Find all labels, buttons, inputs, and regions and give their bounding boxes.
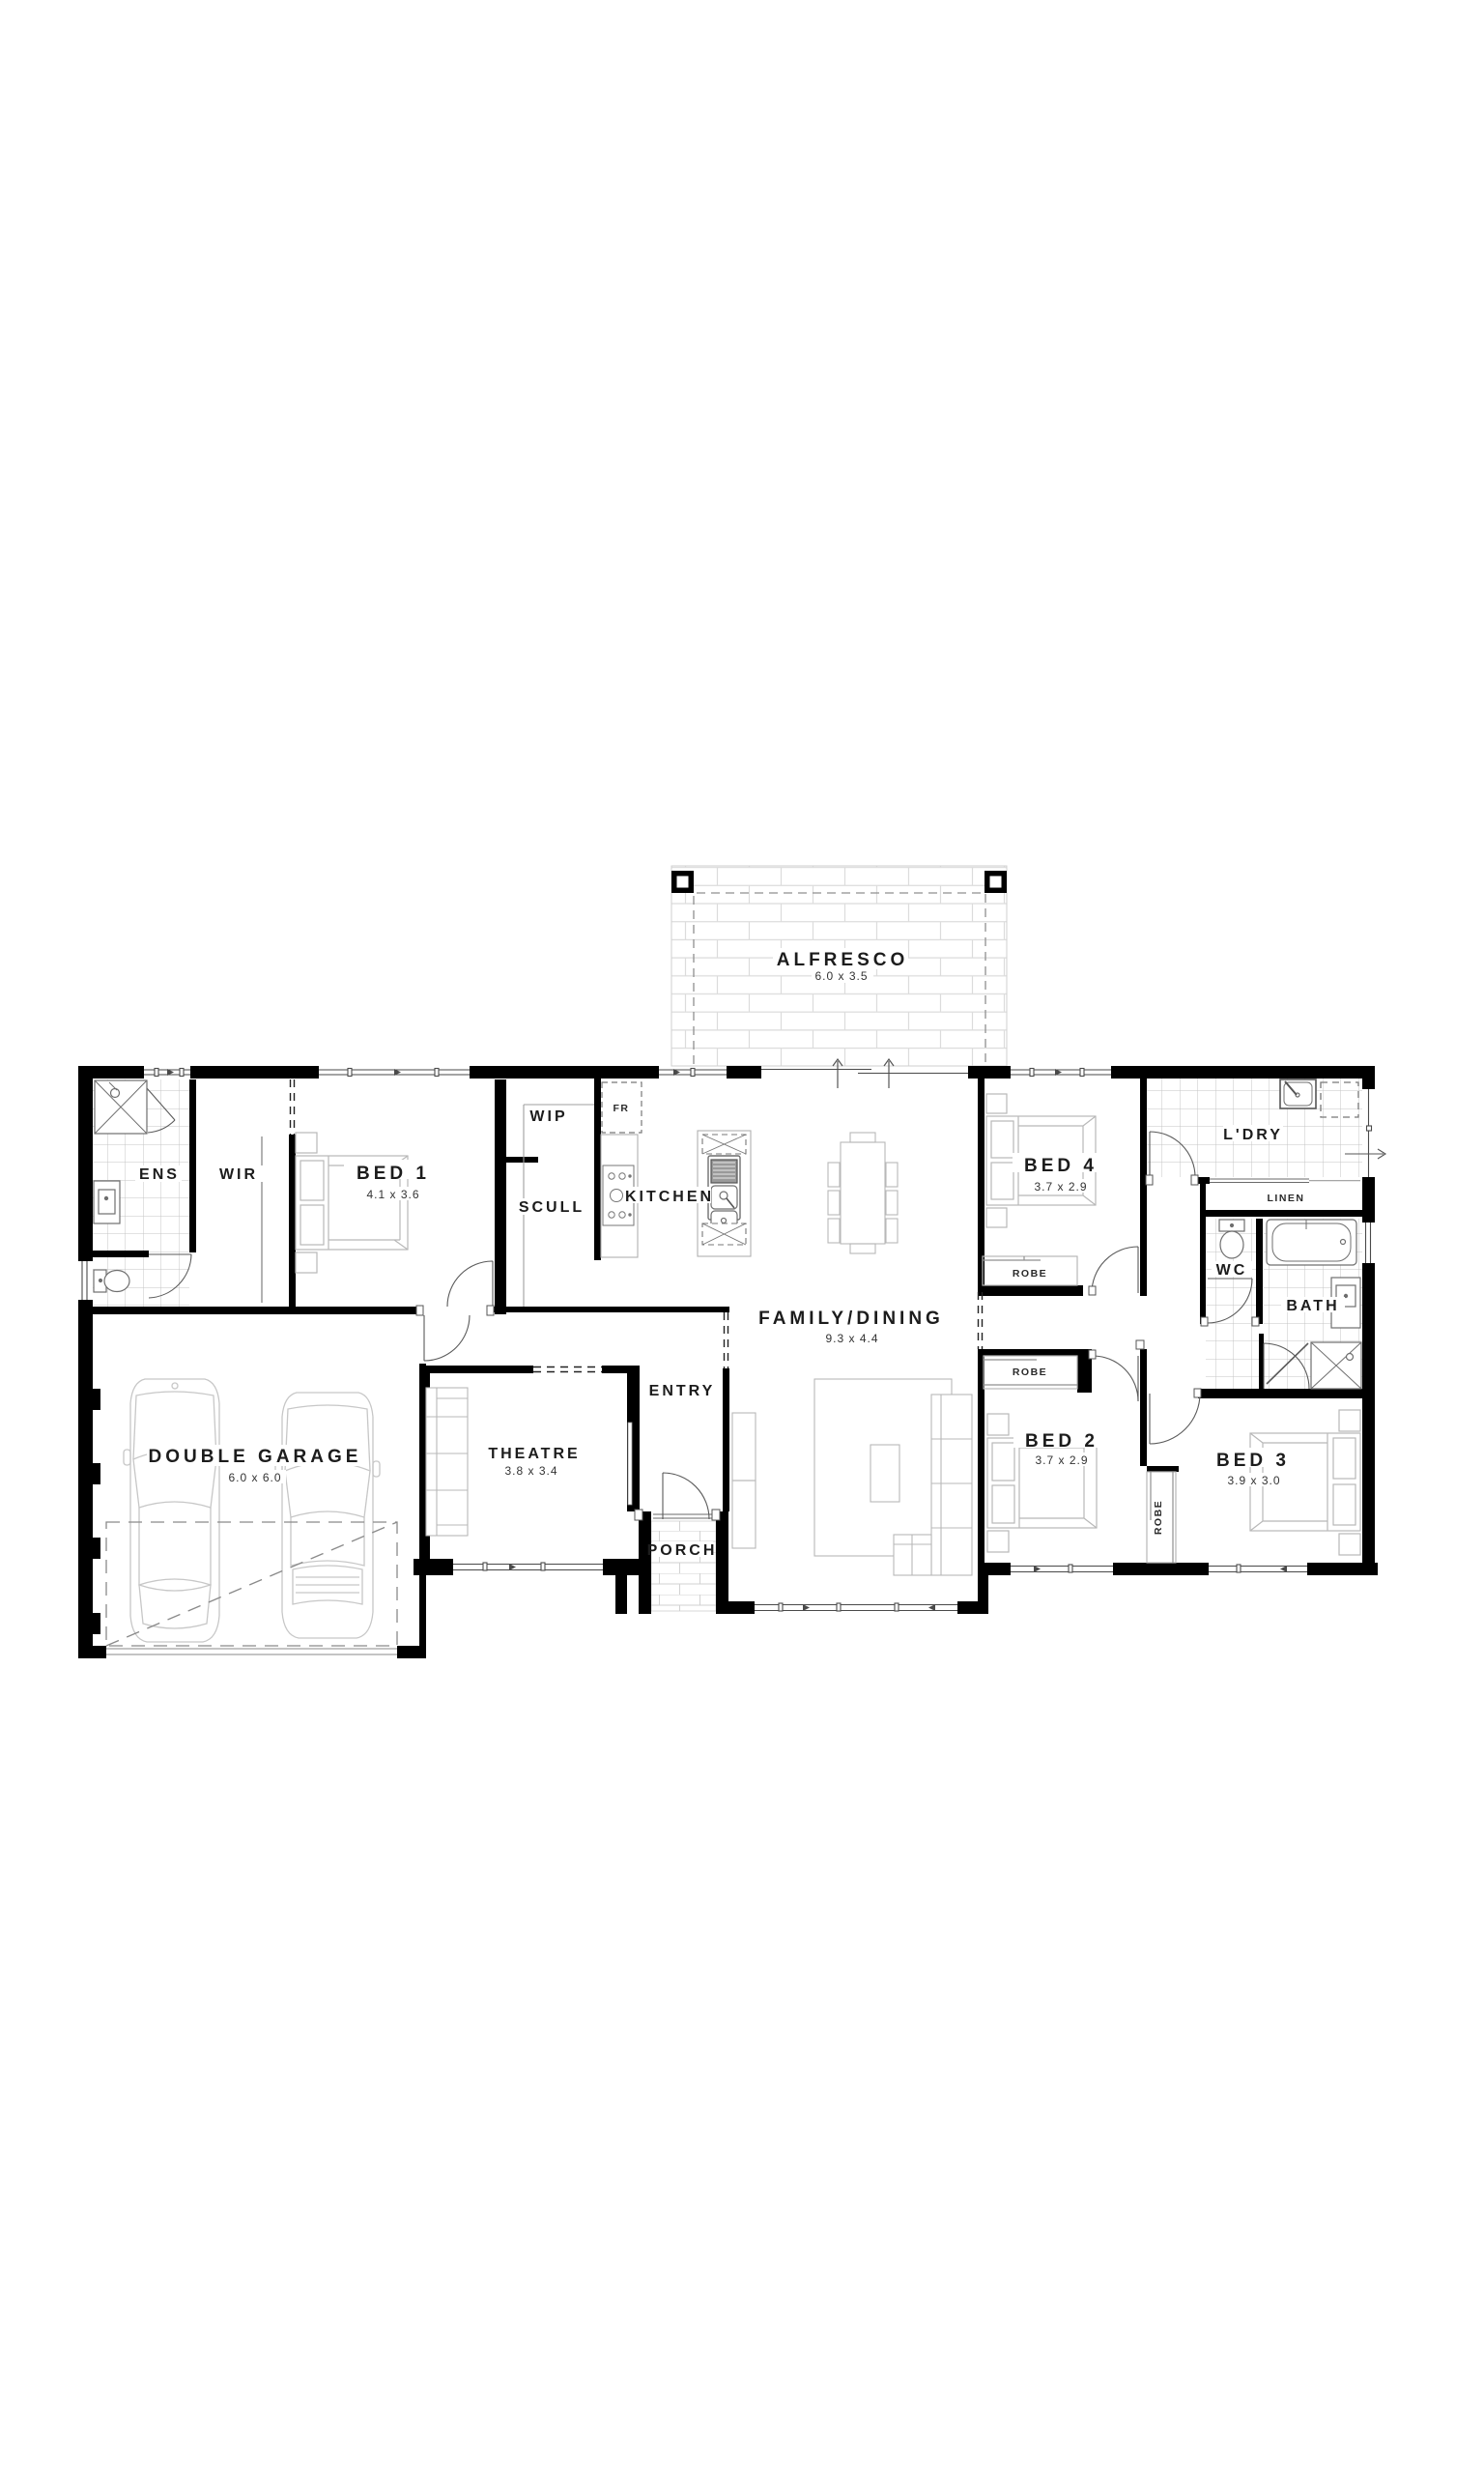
svg-text:3.9 x 3.0: 3.9 x 3.0 xyxy=(1227,1474,1280,1487)
svg-text:PORCH: PORCH xyxy=(647,1542,718,1559)
svg-text:3.7 x 2.9: 3.7 x 2.9 xyxy=(1034,1180,1087,1194)
svg-text:WC: WC xyxy=(1216,1262,1248,1279)
svg-text:ROBE: ROBE xyxy=(1013,1366,1047,1378)
svg-text:DOUBLE GARAGE: DOUBLE GARAGE xyxy=(149,1447,362,1467)
svg-text:9.3 x 4.4: 9.3 x 4.4 xyxy=(825,1332,878,1345)
svg-text:KITCHEN: KITCHEN xyxy=(625,1189,714,1205)
svg-text:WIP: WIP xyxy=(529,1108,567,1125)
svg-text:ROBE: ROBE xyxy=(1013,1268,1047,1280)
svg-text:SCULL: SCULL xyxy=(519,1199,585,1216)
svg-text:THEATRE: THEATRE xyxy=(488,1446,580,1462)
svg-text:3.7 x 2.9: 3.7 x 2.9 xyxy=(1035,1453,1088,1467)
svg-text:BATH: BATH xyxy=(1286,1298,1339,1314)
svg-text:BED 4: BED 4 xyxy=(1024,1156,1098,1176)
svg-text:ENTRY: ENTRY xyxy=(649,1383,716,1399)
svg-text:ROBE: ROBE xyxy=(1153,1500,1164,1535)
svg-text:3.8 x 3.4: 3.8 x 3.4 xyxy=(504,1464,557,1478)
svg-text:WIR: WIR xyxy=(219,1166,258,1183)
svg-text:FAMILY/DINING: FAMILY/DINING xyxy=(758,1309,944,1329)
svg-text:BED 2: BED 2 xyxy=(1025,1431,1099,1452)
svg-text:ALFRESCO: ALFRESCO xyxy=(777,950,909,970)
svg-text:6.0 x 3.5: 6.0 x 3.5 xyxy=(814,969,868,983)
svg-text:4.1 x 3.6: 4.1 x 3.6 xyxy=(366,1188,419,1201)
svg-text:FR: FR xyxy=(614,1103,630,1114)
svg-text:BED 3: BED 3 xyxy=(1216,1451,1290,1471)
svg-text:L'DRY: L'DRY xyxy=(1223,1127,1283,1143)
svg-text:BED 1: BED 1 xyxy=(357,1164,430,1184)
svg-text:6.0 x 6.0: 6.0 x 6.0 xyxy=(228,1471,281,1484)
svg-text:ENS: ENS xyxy=(139,1166,180,1183)
svg-text:LINEN: LINEN xyxy=(1268,1193,1305,1204)
